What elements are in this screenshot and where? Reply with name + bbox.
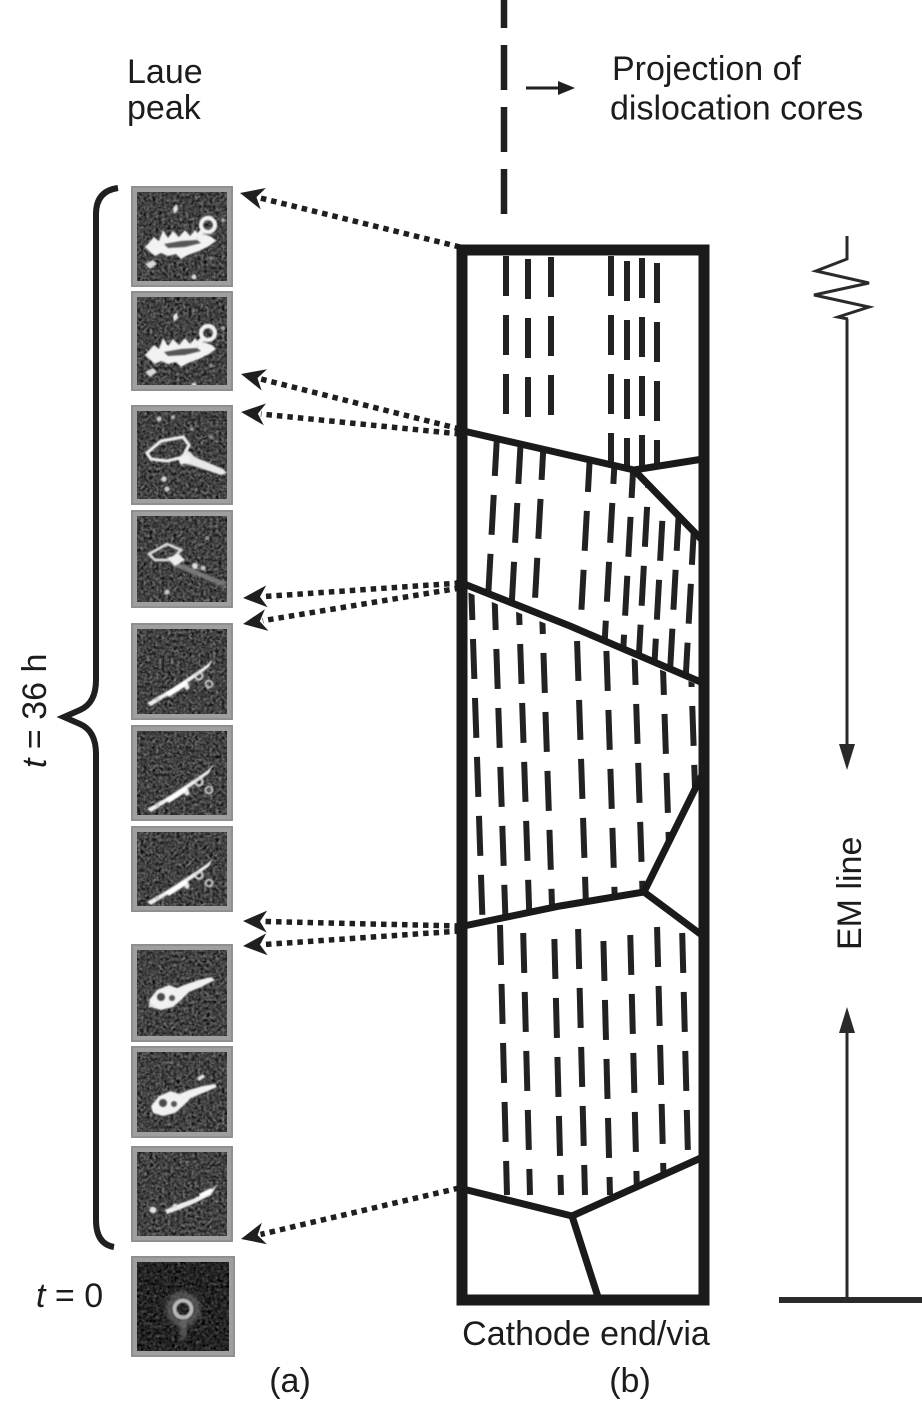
svg-text:Cathode end/via: Cathode end/via	[462, 1315, 710, 1353]
svg-text:dislocation cores: dislocation cores	[610, 90, 863, 128]
svg-text:EM line: EM line	[831, 837, 869, 950]
svg-text:Laue: Laue	[127, 53, 203, 91]
svg-text:peak: peak	[127, 89, 202, 127]
svg-text:(b): (b)	[609, 1362, 651, 1400]
svg-text:(a): (a)	[269, 1362, 311, 1400]
svg-text:t = 0: t = 0	[36, 1277, 103, 1315]
svg-text:Projection of: Projection of	[612, 50, 802, 88]
svg-text:t = 36 h: t = 36 h	[16, 654, 54, 768]
